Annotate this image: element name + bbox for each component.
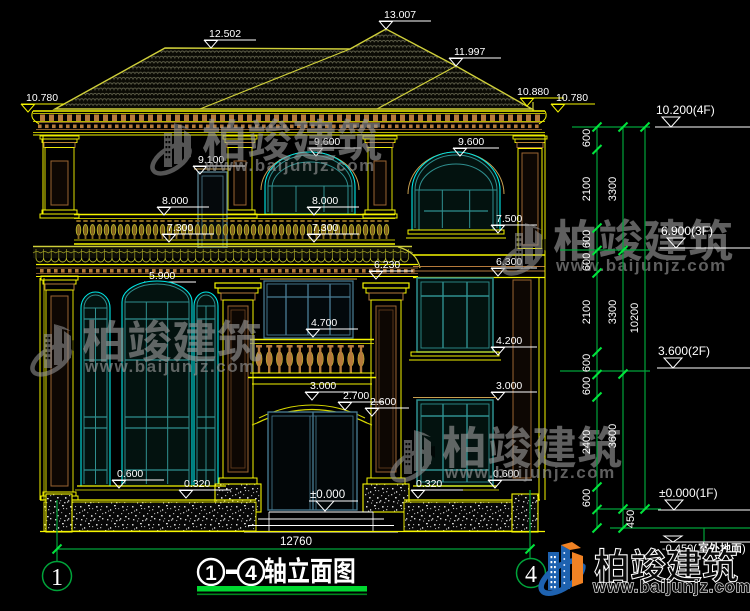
svg-text:13.007: 13.007 xyxy=(384,9,416,21)
svg-text:10.200(4F): 10.200(4F) xyxy=(656,103,715,117)
svg-text:5.900: 5.900 xyxy=(149,270,175,282)
svg-text:2400: 2400 xyxy=(581,430,593,454)
svg-text:): ) xyxy=(742,543,746,555)
svg-text:7.500: 7.500 xyxy=(496,213,522,225)
svg-text:600: 600 xyxy=(581,377,593,395)
svg-text:6.230: 6.230 xyxy=(374,259,400,271)
svg-text:600: 600 xyxy=(581,129,593,147)
svg-text:www.baijunjz.com: www.baijunjz.com xyxy=(592,578,750,596)
svg-text:600: 600 xyxy=(581,230,593,248)
svg-text:3300: 3300 xyxy=(607,177,619,201)
svg-text:6.900(3F): 6.900(3F) xyxy=(661,224,713,238)
svg-text:1: 1 xyxy=(205,562,217,585)
svg-text:www.baijunjz.com: www.baijunjz.com xyxy=(204,156,376,175)
svg-text:600: 600 xyxy=(581,489,593,507)
svg-text:3300: 3300 xyxy=(607,300,619,324)
svg-text:7.300: 7.300 xyxy=(167,222,193,234)
svg-text:3600: 3600 xyxy=(607,424,619,448)
svg-text:10.880: 10.880 xyxy=(517,86,549,98)
svg-text:3.600(2F): 3.600(2F) xyxy=(658,344,710,358)
svg-text:600: 600 xyxy=(581,354,593,372)
svg-text:3.000: 3.000 xyxy=(496,380,522,392)
svg-text:2100: 2100 xyxy=(581,300,593,324)
svg-text:4.700: 4.700 xyxy=(311,317,337,329)
svg-text:www.baijunjz.com: www.baijunjz.com xyxy=(444,463,616,482)
svg-text:www.baijunjz.com: www.baijunjz.com xyxy=(84,357,256,376)
svg-text:2.700: 2.700 xyxy=(343,390,369,402)
svg-text:4.200: 4.200 xyxy=(496,335,522,347)
svg-text:2100: 2100 xyxy=(581,177,593,201)
svg-text:4: 4 xyxy=(525,562,537,588)
svg-text:2.600: 2.600 xyxy=(370,396,396,408)
svg-text:12760: 12760 xyxy=(280,536,312,548)
svg-text:3.000: 3.000 xyxy=(310,380,336,392)
svg-text:8.000: 8.000 xyxy=(162,195,188,207)
svg-text:4: 4 xyxy=(245,562,257,585)
svg-text:7.300: 7.300 xyxy=(312,222,338,234)
svg-text:9.600: 9.600 xyxy=(458,136,484,148)
svg-text:±0.000(1F): ±0.000(1F) xyxy=(659,486,718,500)
svg-text:12.502: 12.502 xyxy=(209,28,241,40)
svg-text:8.000: 8.000 xyxy=(312,195,338,207)
svg-text:11.997: 11.997 xyxy=(454,46,485,58)
svg-text:10.780: 10.780 xyxy=(26,92,58,104)
svg-text:600: 600 xyxy=(581,253,593,271)
svg-text:450: 450 xyxy=(625,510,637,528)
svg-text:±0.000: ±0.000 xyxy=(310,489,345,501)
svg-text:1: 1 xyxy=(51,565,63,591)
svg-text:0.320: 0.320 xyxy=(184,478,210,490)
svg-text:0.320: 0.320 xyxy=(416,478,442,490)
svg-text:10200: 10200 xyxy=(629,303,641,334)
svg-text:0.600: 0.600 xyxy=(117,468,143,480)
svg-text:10.780: 10.780 xyxy=(556,92,588,104)
